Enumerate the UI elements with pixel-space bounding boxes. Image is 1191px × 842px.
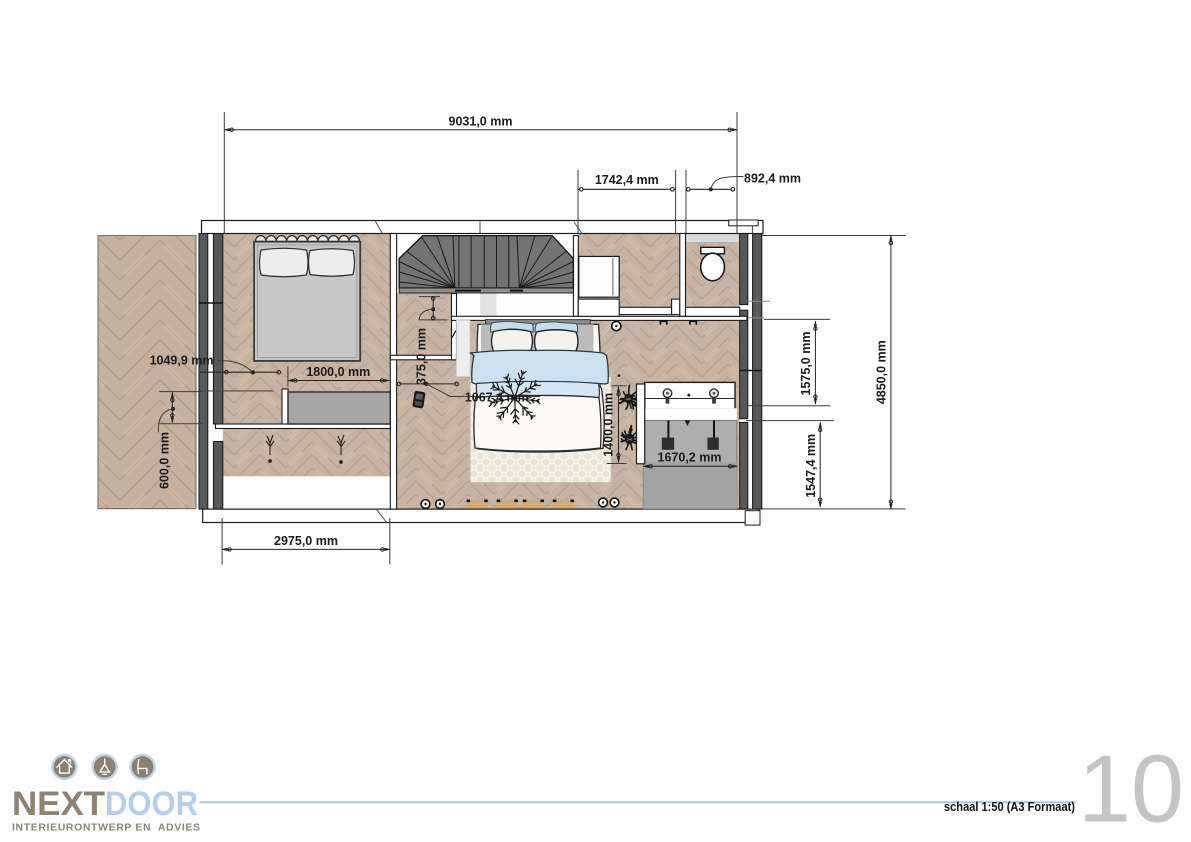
svg-text:1400,0 mm: 1400,0 mm xyxy=(601,393,615,457)
svg-text:INTERIEURONTWERP EN ADVIES: INTERIEURONTWERP EN ADVIES xyxy=(12,821,200,833)
svg-text:892,4 mm: 892,4 mm xyxy=(744,171,801,185)
svg-text:9031,0 mm: 9031,0 mm xyxy=(449,115,513,129)
svg-text:schaal 1:50 (A3 Formaat): schaal 1:50 (A3 Formaat) xyxy=(944,799,1075,814)
svg-text:DOOR: DOOR xyxy=(105,785,198,823)
svg-text:1742,4 mm: 1742,4 mm xyxy=(595,173,659,187)
svg-text:1800,0 mm: 1800,0 mm xyxy=(306,365,370,379)
svg-text:375,0 mm: 375,0 mm xyxy=(415,328,429,385)
svg-text:1049,9 mm: 1049,9 mm xyxy=(150,354,214,368)
svg-text:1575,0 mm: 1575,0 mm xyxy=(799,332,813,396)
svg-text:1067,4 mm: 1067,4 mm xyxy=(465,391,529,405)
svg-text:4850,0 mm: 4850,0 mm xyxy=(875,340,889,404)
svg-text:10: 10 xyxy=(1078,736,1184,842)
svg-text:600,0 mm: 600,0 mm xyxy=(158,432,172,489)
svg-text:NEXT: NEXT xyxy=(12,785,105,823)
svg-text:2975,0 mm: 2975,0 mm xyxy=(274,534,338,548)
svg-text:1547,4 mm: 1547,4 mm xyxy=(804,434,818,498)
svg-text:1670,2 mm: 1670,2 mm xyxy=(658,451,722,465)
